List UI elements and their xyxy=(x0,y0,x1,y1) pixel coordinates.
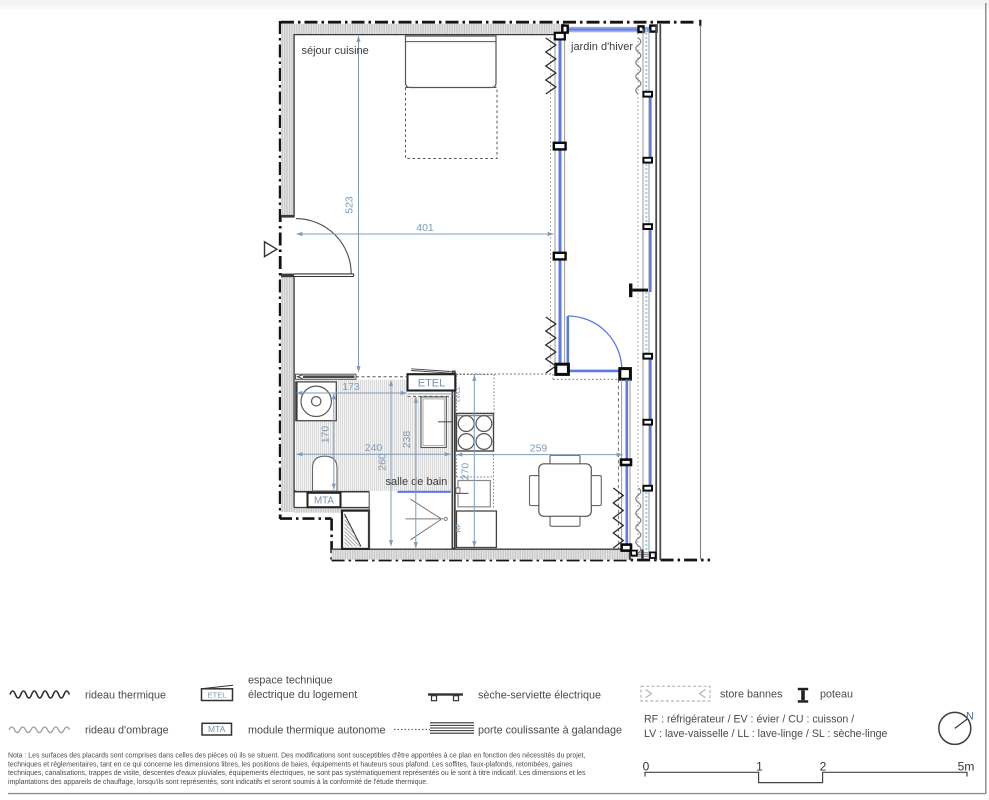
svg-text:porte coulissante à galandage: porte coulissante à galandage xyxy=(478,725,622,737)
svg-text:170: 170 xyxy=(320,426,332,444)
svg-text:module thermique autonome: module thermique autonome xyxy=(248,725,385,737)
svg-text:1: 1 xyxy=(756,760,763,774)
svg-text:ETEL: ETEL xyxy=(418,378,446,390)
svg-text:2: 2 xyxy=(820,760,827,774)
svg-text:techniques, canalisations, tra: techniques, canalisations, trappes de vi… xyxy=(8,770,586,777)
svg-text:RF : réfrigérateur / EV : évie: RF : réfrigérateur / EV : évier / CU : c… xyxy=(644,714,854,726)
svg-text:240: 240 xyxy=(365,442,383,454)
svg-text:ETEL: ETEL xyxy=(208,690,227,699)
svg-text:LV/LL: LV/LL xyxy=(455,386,462,402)
svg-text:store bannes: store bannes xyxy=(720,689,783,701)
svg-text:sèche-serviette électrique: sèche-serviette électrique xyxy=(478,690,601,702)
svg-text:rideau d'ombrage: rideau d'ombrage xyxy=(85,725,169,737)
svg-text:0: 0 xyxy=(643,760,650,774)
svg-text:5m: 5m xyxy=(958,760,975,774)
svg-text:techniques et réglementaires,: techniques et réglementaires, tant en ce… xyxy=(8,761,573,768)
svg-text:LV : lave-vaisselle / LL : lav: LV : lave-vaisselle / LL : lave-linge / … xyxy=(644,728,887,740)
svg-text:implantations des appareils de: implantations des appareils de chauffage… xyxy=(8,779,428,786)
svg-text:rideau thermique: rideau thermique xyxy=(85,690,166,702)
svg-text:RF: RF xyxy=(456,523,463,532)
svg-text:401: 401 xyxy=(416,222,434,234)
svg-text:MTA: MTA xyxy=(314,496,334,507)
svg-text:173: 173 xyxy=(342,381,360,393)
svg-text:jardin d'hiver: jardin d'hiver xyxy=(570,41,633,53)
svg-text:séjour cuisine: séjour cuisine xyxy=(302,45,369,57)
svg-text:MTA: MTA xyxy=(208,724,226,734)
svg-text:salle de bain: salle de bain xyxy=(386,476,448,488)
svg-text:523: 523 xyxy=(344,196,356,214)
svg-text:N: N xyxy=(966,711,974,723)
svg-text:238: 238 xyxy=(401,431,413,449)
svg-text:poteau: poteau xyxy=(820,689,853,701)
svg-text:espace technique: espace technique xyxy=(248,675,333,687)
svg-text:électrique du logement: électrique du logement xyxy=(248,689,357,701)
svg-text:Nota : Les surfaces des placar: Nota : Les surfaces des placards sont co… xyxy=(8,753,585,760)
svg-text:270: 270 xyxy=(460,463,472,481)
svg-text:259: 259 xyxy=(530,443,548,455)
svg-text:260: 260 xyxy=(377,453,389,471)
